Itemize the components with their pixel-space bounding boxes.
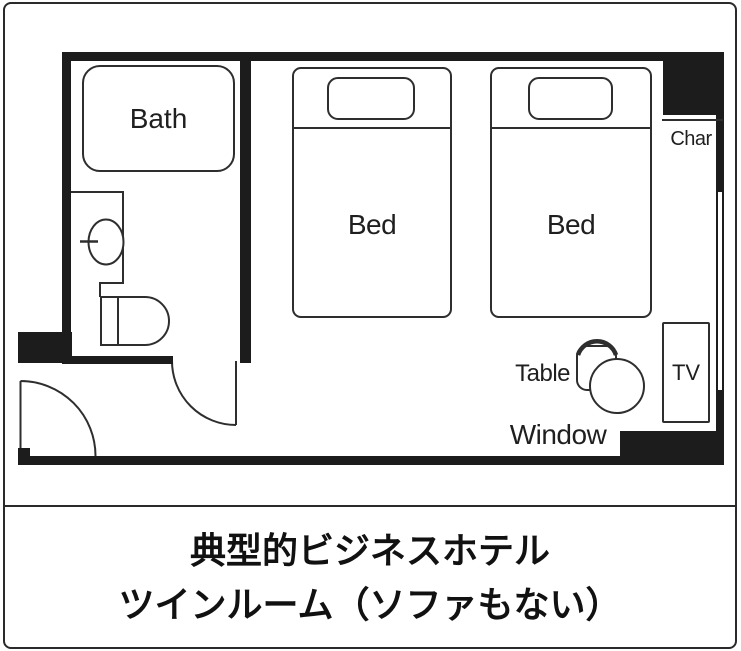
wall-top bbox=[62, 52, 723, 61]
round-table-shape bbox=[589, 358, 645, 414]
wall-right-lower bbox=[716, 390, 724, 432]
window-right-shape bbox=[716, 192, 724, 390]
wall-bottom-right-block bbox=[620, 431, 724, 465]
window-label: Window bbox=[502, 421, 614, 449]
caption: 典型的ビジネスホテル ツインルーム（ソファもない） bbox=[3, 507, 737, 649]
wall-top-right-block bbox=[663, 52, 724, 115]
bathroom-door-arc bbox=[172, 361, 236, 425]
caption-line2: ツインルーム（ソファもない） bbox=[119, 587, 622, 623]
entry-door-arc bbox=[21, 381, 96, 456]
wall-bottom bbox=[18, 456, 623, 465]
desk-edge-line bbox=[662, 119, 723, 121]
wall-bathroom-right bbox=[240, 52, 251, 363]
wall-left bbox=[62, 52, 71, 363]
chair-label: Char bbox=[663, 129, 719, 149]
caption-line1: 典型的ビジネスホテル bbox=[190, 533, 550, 569]
floorplan-figure: Bath Bed Bed TV bbox=[0, 0, 741, 651]
table-label: Table bbox=[480, 362, 570, 386]
wall-bathroom-bottom bbox=[62, 356, 173, 364]
